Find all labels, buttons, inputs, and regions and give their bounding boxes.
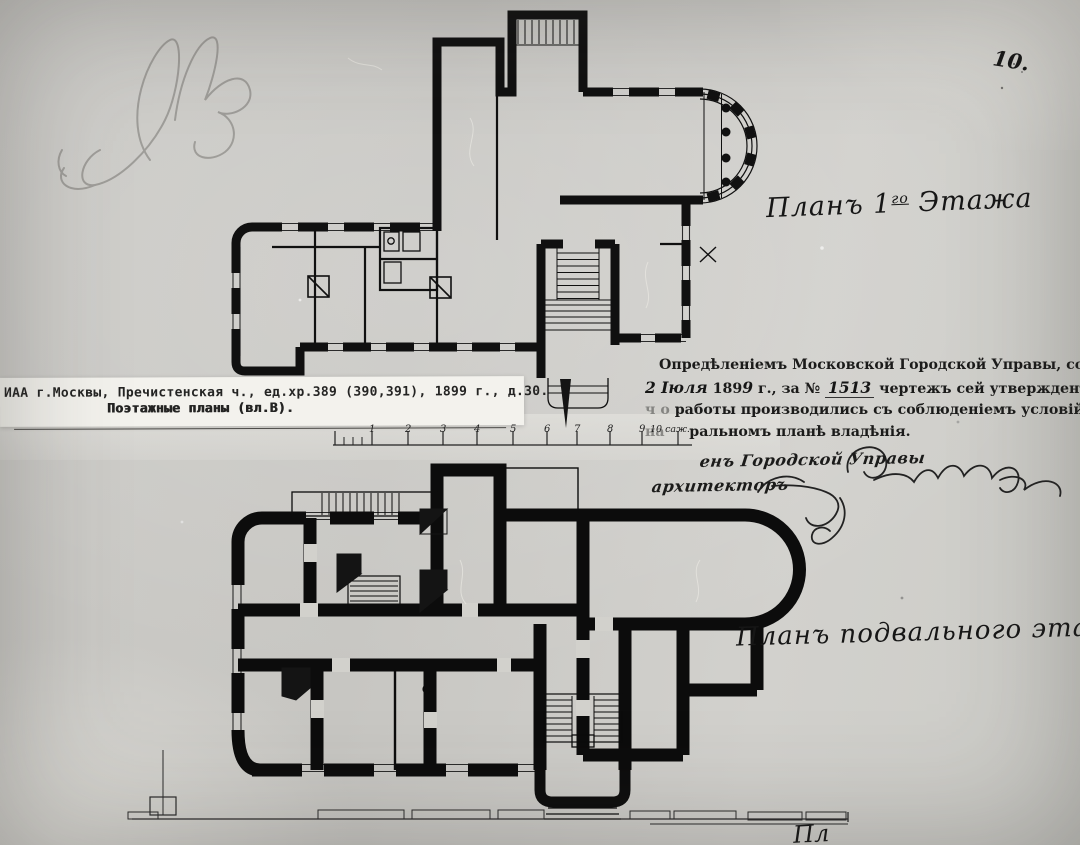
- bottom-cut-caption: Пл: [792, 819, 830, 845]
- approval-line4-text: ральномъ планѣ владѣнія.: [689, 424, 910, 440]
- approval-number-prefix: г., за №: [758, 381, 820, 397]
- approval-year-printed: 189: [713, 381, 743, 397]
- approval-number-handwritten: 1513: [825, 378, 874, 398]
- scale-label: 4: [474, 424, 480, 435]
- architect-label: архитекторъ: [651, 475, 790, 496]
- scale-label: 5: [510, 424, 516, 435]
- scale-unit-label: 10 саж.: [650, 424, 690, 435]
- scale-label: 1: [369, 424, 375, 435]
- street-baseline: [128, 750, 848, 824]
- scale-label: 2: [405, 424, 411, 435]
- scale-label: 9: [639, 424, 645, 435]
- first-floor-title-sup: го: [891, 191, 909, 208]
- scale-label: 8: [607, 424, 613, 435]
- approval-stamp: Опредѣленіемъ Московской Городской Управ…: [645, 355, 1080, 443]
- approval-year-digit-handwritten: 9: [742, 378, 753, 397]
- approval-line4: на ральномъ планѣ владѣнія.: [645, 422, 1080, 444]
- plan-basement: [233, 468, 800, 819]
- approval-line3-faint: ч о: [645, 402, 670, 418]
- pencil-monogram: [59, 37, 251, 189]
- scale-label: 6: [544, 424, 550, 435]
- scale-label: 3: [440, 424, 446, 435]
- approval-date-handwritten: 2 Іюля: [645, 378, 708, 397]
- archive-label-line1: ИАА г.Москвы, Пречистенская ч., ед.хр.38…: [4, 384, 549, 401]
- council-member-label: енъ Городской Управы: [699, 448, 927, 471]
- archival-photo: ИАА г.Москвы, Пречистенская ч., ед.хр.38…: [0, 0, 1080, 845]
- approval-line3: ч о работы производились съ соблюденіемъ…: [645, 400, 1080, 422]
- approval-line3-text: работы производились съ соблюденіемъ усл…: [675, 402, 1080, 418]
- archive-label-strip: ИАА г.Москвы, Пречистенская ч., ед.хр.38…: [0, 376, 524, 427]
- first-floor-title-suffix: Этажа: [908, 183, 1033, 219]
- approval-line2-tail: чертежъ сей утвержденъ съ: [879, 381, 1080, 397]
- approval-line2: 2 Іюля 1899 г., за № 1513 чертежъ сей ут…: [645, 377, 1080, 401]
- scale-label: 7: [574, 424, 580, 435]
- approval-line1: Опредѣленіемъ Московской Городской Управ…: [645, 355, 1080, 377]
- first-floor-title-prefix: Планъ 1: [766, 188, 892, 224]
- archive-label-line2: Поэтажные планы (вл.В).: [107, 401, 294, 417]
